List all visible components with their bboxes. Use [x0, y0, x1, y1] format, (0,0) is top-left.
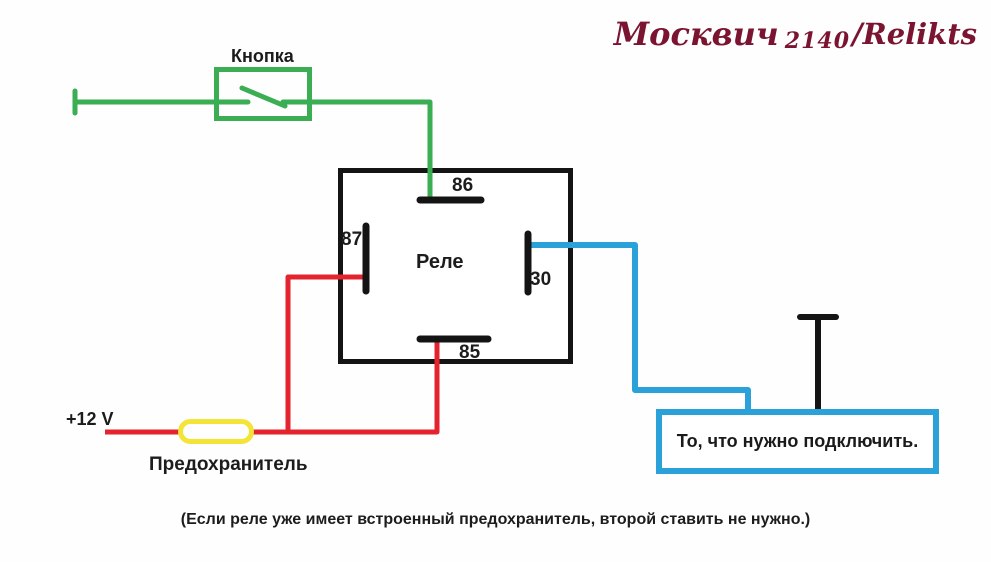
blue-wire-to-load: [530, 245, 748, 413]
relay-label: Реле: [416, 251, 464, 274]
supply-label: +12 V: [66, 409, 114, 430]
footnote: (Если реле уже имеет встроенный предохра…: [0, 511, 991, 529]
watermark-model: 2140: [785, 30, 850, 52]
fuse-symbol: [178, 419, 254, 444]
red-wire-main: [105, 340, 437, 432]
button-label: Кнопка: [231, 46, 294, 67]
terminal-85-label: 85: [459, 342, 480, 364]
watermark-brand: Москвич: [614, 18, 779, 50]
watermark-suffix: /Relikts: [852, 20, 977, 49]
terminal-86-label: 86: [452, 175, 473, 197]
terminal-30-label: 30: [530, 269, 551, 291]
watermark: Москвич 2140 /Relikts: [614, 18, 977, 52]
green-wire-to-relay: [283, 102, 430, 198]
red-wire-87: [288, 277, 364, 434]
wiring-diagram: То, что нужно подключить. Кнопка 86 87 3…: [0, 0, 991, 562]
fuse-label: Предохранитель: [149, 454, 308, 476]
terminal-87-label: 87: [341, 229, 362, 251]
load-label: То, что нужно подключить.: [677, 431, 918, 452]
load-box: То, что нужно подключить.: [656, 409, 939, 474]
wiring-svg: [0, 0, 991, 562]
